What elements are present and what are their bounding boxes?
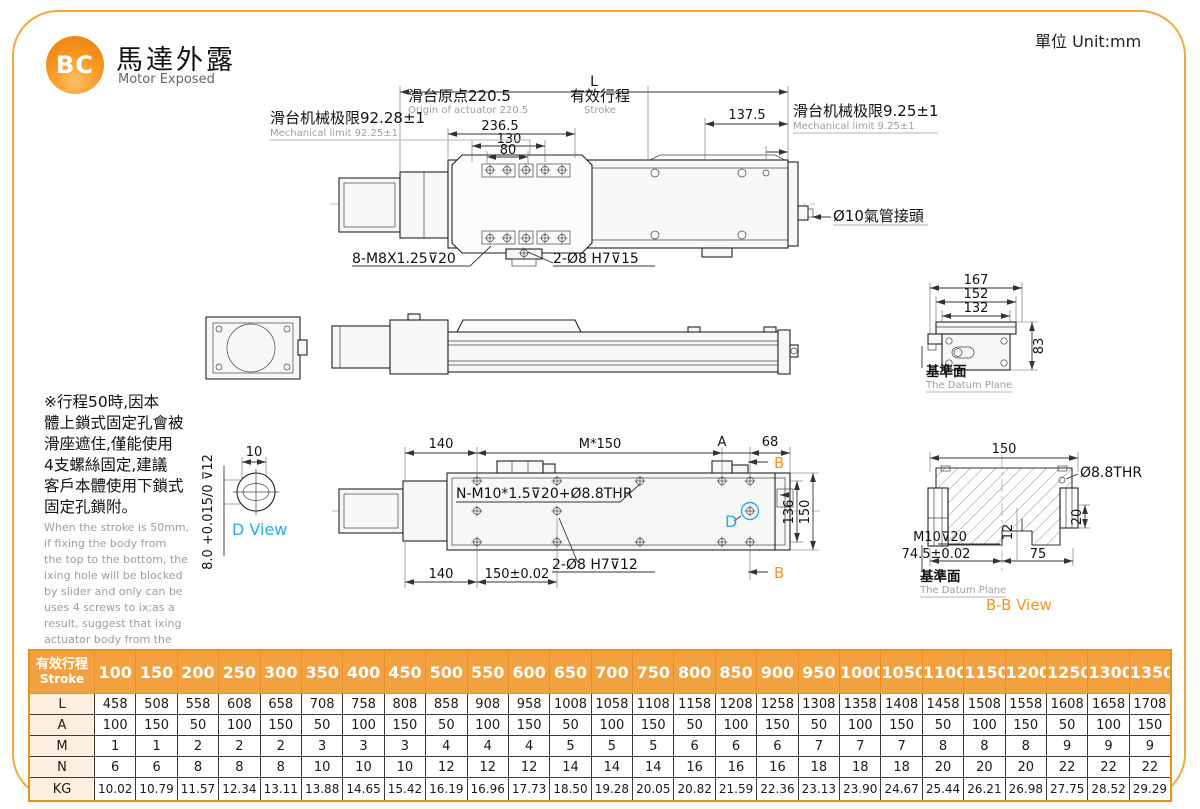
mech-limit-left-zh: 滑台机械极限92.28±1 xyxy=(270,109,425,127)
table-cell: 100 xyxy=(1088,715,1129,736)
table-cell: 22 xyxy=(1129,757,1171,778)
table-cell: 10 xyxy=(343,757,384,778)
table-cell: 1258 xyxy=(757,694,798,715)
section-b-top: B xyxy=(774,454,784,472)
bb-dim-12: 12 xyxy=(1001,524,1016,541)
table-cell: 100 xyxy=(964,715,1005,736)
row-label-a: A xyxy=(29,715,95,736)
table-row-a: A100150501001505010015050100150501001505… xyxy=(29,715,1171,736)
unit-label: 單位 Unit:mm xyxy=(1035,28,1141,52)
screw-callout: 8-M8X1.25⊽20 xyxy=(352,251,456,267)
table-cell: 16 xyxy=(674,757,715,778)
stroke-header-cell: 650 xyxy=(550,650,591,694)
stroke-header-cell: 200 xyxy=(177,650,218,694)
table-cell: 508 xyxy=(136,694,177,715)
table-cell: 100 xyxy=(219,715,260,736)
note-block: ※行程50時,因本 體上鎖式固定孔會被 滑座遮住,僅能使用 4支螺絲固定,建議 … xyxy=(44,392,220,664)
table-cell: 558 xyxy=(177,694,218,715)
table-cell: 1158 xyxy=(674,694,715,715)
stroke-header-cell: 600 xyxy=(508,650,549,694)
stroke-header-cell: 800 xyxy=(674,650,715,694)
bottom-plan-view: D 140 M*150 A 68 B B N-M10*1.5⊽20+Ø8.8TH… xyxy=(332,435,820,588)
dim-140-bottom: 140 xyxy=(429,567,454,582)
stroke-header-cell: 550 xyxy=(467,650,508,694)
d-view-label: D View xyxy=(232,520,287,539)
table-cell: 150 xyxy=(384,715,425,736)
table-cell: 1458 xyxy=(922,694,963,715)
dim-68: 68 xyxy=(762,435,779,450)
table-cell: 9 xyxy=(1129,736,1171,757)
table-cell: 14 xyxy=(633,757,674,778)
table-cell: 1308 xyxy=(798,694,839,715)
stroke-header-cell: 300 xyxy=(260,650,301,694)
table-cell: 14 xyxy=(591,757,632,778)
stroke-header-cell: 400 xyxy=(343,650,384,694)
stroke-header-cell: 1150 xyxy=(964,650,1005,694)
end-view: 167 152 132 83 基準面 The Datum Plane xyxy=(922,273,1047,392)
table-cell: 4 xyxy=(467,736,508,757)
table-cell: 10 xyxy=(384,757,425,778)
table-cell: 20 xyxy=(964,757,1005,778)
table-cell: 17.73 xyxy=(508,778,549,802)
table-cell: 1108 xyxy=(633,694,674,715)
table-cell: 4 xyxy=(508,736,549,757)
stroke-header-label: 有效行程Stroke xyxy=(29,650,95,694)
table-cell: 5 xyxy=(550,736,591,757)
bb-m10-callout: M10⊽20 xyxy=(913,530,967,545)
table-cell: 14 xyxy=(550,757,591,778)
table-cell: 1008 xyxy=(550,694,591,715)
table-cell: 9 xyxy=(1088,736,1129,757)
table-cell: 6 xyxy=(757,736,798,757)
table-cell: 5 xyxy=(633,736,674,757)
air-fitting-label: Ø10氣管接頭 xyxy=(833,207,924,225)
pin-callout-top: 2-Ø8 H7⊽15 xyxy=(553,251,639,267)
table-cell: 18 xyxy=(798,757,839,778)
stroke-header-cell: 150 xyxy=(136,650,177,694)
table-cell: 150 xyxy=(881,715,922,736)
table-cell: 5 xyxy=(591,736,632,757)
label-a: A xyxy=(718,435,727,450)
note-text-en: When the stroke is 50mm, if fixing the b… xyxy=(44,520,220,664)
stroke-header-cell: 500 xyxy=(426,650,467,694)
table-cell: 100 xyxy=(715,715,756,736)
table-cell: 100 xyxy=(840,715,881,736)
dim-150-tol: 150±0.02 xyxy=(485,567,550,582)
bb-view-label: B-B View xyxy=(986,596,1052,614)
mech-limit-right-zh: 滑台机械极限9.25±1 xyxy=(793,102,939,120)
table-cell: 50 xyxy=(177,715,218,736)
dim-10: 10 xyxy=(246,445,263,460)
table-cell: 14.65 xyxy=(343,778,384,802)
table-row-m: M11222333444555666777888999 xyxy=(29,736,1171,757)
table-cell: 6 xyxy=(674,736,715,757)
stroke-header-cell: 850 xyxy=(715,650,756,694)
table-cell: 16.19 xyxy=(426,778,467,802)
table-cell: 758 xyxy=(343,694,384,715)
stroke-header-cell: 700 xyxy=(591,650,632,694)
table-cell: 100 xyxy=(467,715,508,736)
table-cell: 18.50 xyxy=(550,778,591,802)
table-row-l: L458508558608658708758808858908958100810… xyxy=(29,694,1171,715)
table-cell: 150 xyxy=(1129,715,1171,736)
table-cell: 6 xyxy=(95,757,136,778)
bb-dim-75: 75 xyxy=(1030,547,1047,562)
table-cell: 11.57 xyxy=(177,778,218,802)
table-cell: 16 xyxy=(757,757,798,778)
section-b-bottom: B xyxy=(774,564,784,582)
table-cell: 22 xyxy=(1088,757,1129,778)
table-cell: 50 xyxy=(798,715,839,736)
side-pictorial-views xyxy=(206,314,798,379)
table-cell: 12 xyxy=(508,757,549,778)
table-cell: 8 xyxy=(1005,736,1046,757)
stroke-header-cell: 100 xyxy=(95,650,136,694)
stroke-header-cell: 250 xyxy=(219,650,260,694)
bb-dim-74-5: 74.5±0.02 xyxy=(902,547,971,562)
stroke-header-cell: 1050 xyxy=(881,650,922,694)
stroke-label-zh: 有效行程 xyxy=(570,87,630,105)
table-cell: 3 xyxy=(343,736,384,757)
table-cell: 8 xyxy=(177,757,218,778)
table-cell: 150 xyxy=(136,715,177,736)
stroke-header-cell: 750 xyxy=(633,650,674,694)
table-cell: 100 xyxy=(343,715,384,736)
table-cell: 16.96 xyxy=(467,778,508,802)
table-cell: 4 xyxy=(426,736,467,757)
spec-table: 有效行程Stroke100150200250300350400450500550… xyxy=(28,649,1172,802)
table-cell: 12.34 xyxy=(219,778,260,802)
table-cell: 858 xyxy=(426,694,467,715)
table-cell: 608 xyxy=(219,694,260,715)
row-label-m: M xyxy=(29,736,95,757)
table-cell: 2 xyxy=(260,736,301,757)
table-cell: 708 xyxy=(301,694,342,715)
stroke-header-cell: 1300 xyxy=(1088,650,1129,694)
bb-section-view: 150 Ø8.8THR 20 12 M10⊽20 74.5±0.02 75 基準… xyxy=(902,442,1143,614)
table-cell: 1358 xyxy=(840,694,881,715)
pin-callout-bottom: 2-Ø8 H7⊽12 xyxy=(552,557,638,573)
bb-thr-callout: Ø8.8THR xyxy=(1080,465,1142,481)
row-label-n: N xyxy=(29,757,95,778)
table-cell: 1608 xyxy=(1046,694,1087,715)
table-cell: 6 xyxy=(715,736,756,757)
table-cell: 1558 xyxy=(1005,694,1046,715)
table-cell: 50 xyxy=(426,715,467,736)
dim-136: 136 xyxy=(782,500,797,525)
table-cell: 20.82 xyxy=(674,778,715,802)
table-cell: 15.42 xyxy=(384,778,425,802)
table-cell: 10 xyxy=(301,757,342,778)
table-cell: 20 xyxy=(922,757,963,778)
table-cell: 1708 xyxy=(1129,694,1171,715)
table-cell: 26.98 xyxy=(1005,778,1046,802)
table-cell: 50 xyxy=(922,715,963,736)
stroke-header-cell: 450 xyxy=(384,650,425,694)
table-cell: 100 xyxy=(95,715,136,736)
table-row-kg: KG10.0210.7911.5712.3413.1113.8814.6515.… xyxy=(29,778,1171,802)
table-cell: 12 xyxy=(426,757,467,778)
table-cell: 13.11 xyxy=(260,778,301,802)
table-cell: 150 xyxy=(508,715,549,736)
table-cell: 808 xyxy=(384,694,425,715)
datum-label-en-top: The Datum Plane xyxy=(925,380,1012,391)
row-label-kg: KG xyxy=(29,778,95,802)
dim-137-5: 137.5 xyxy=(728,108,765,123)
table-cell: 23.90 xyxy=(840,778,881,802)
table-cell: 10.79 xyxy=(136,778,177,802)
table-cell: 1208 xyxy=(715,694,756,715)
table-cell: 150 xyxy=(260,715,301,736)
table-cell: 26.21 xyxy=(964,778,1005,802)
table-cell: 3 xyxy=(301,736,342,757)
dim-m150: M*150 xyxy=(579,437,622,452)
dim-132: 132 xyxy=(964,301,989,316)
table-cell: 10.02 xyxy=(95,778,136,802)
table-cell: 18 xyxy=(881,757,922,778)
stroke-header-cell: 900 xyxy=(757,650,798,694)
table-cell: 1058 xyxy=(591,694,632,715)
stroke-header-cell: 1350 xyxy=(1129,650,1171,694)
table-cell: 908 xyxy=(467,694,508,715)
table-cell: 50 xyxy=(674,715,715,736)
table-cell: 7 xyxy=(840,736,881,757)
dim-150-right: 150 xyxy=(798,500,813,525)
table-cell: 150 xyxy=(757,715,798,736)
note-text-zh: ※行程50時,因本 體上鎖式固定孔會被 滑座遮住,僅能使用 4支螺絲固定,建議 … xyxy=(44,392,220,518)
table-cell: 6 xyxy=(136,757,177,778)
stroke-header-cell: 950 xyxy=(798,650,839,694)
table-cell: 9 xyxy=(1046,736,1087,757)
table-cell: 20 xyxy=(1005,757,1046,778)
datum-label-en-bb: The Datum Plane xyxy=(919,585,1006,596)
dim-140-top: 140 xyxy=(429,437,454,452)
table-cell: 28.52 xyxy=(1088,778,1129,802)
top-plan-view: L 滑台原点220.5 Origin of actuator 220.5 有效行… xyxy=(270,74,939,267)
origin-label-en: Origin of actuator 220.5 xyxy=(408,105,528,116)
bc-logo-text: BC xyxy=(56,51,94,79)
table-cell: 25.44 xyxy=(922,778,963,802)
table-cell: 1 xyxy=(136,736,177,757)
table-cell: 18 xyxy=(840,757,881,778)
datum-label-zh-top: 基準面 xyxy=(926,363,967,380)
table-cell: 3 xyxy=(384,736,425,757)
page: { "header": { "logo": "BC", "title": "馬達… xyxy=(0,0,1200,809)
table-cell: 2 xyxy=(177,736,218,757)
table-cell: 1408 xyxy=(881,694,922,715)
table-row-n: N668881010101212121414141616161818182020… xyxy=(29,757,1171,778)
table-cell: 8 xyxy=(922,736,963,757)
stroke-header-cell: 1250 xyxy=(1046,650,1087,694)
table-cell: 150 xyxy=(1005,715,1046,736)
table-cell: 1 xyxy=(95,736,136,757)
table-cell: 2 xyxy=(219,736,260,757)
table-cell: 8 xyxy=(260,757,301,778)
thread-callout: N-M10*1.5⊽20+Ø8.8THR xyxy=(456,486,633,502)
dim-80: 80 xyxy=(500,143,517,158)
stroke-label-en: Stroke xyxy=(584,105,616,116)
table-cell: 50 xyxy=(301,715,342,736)
table-cell: 16 xyxy=(715,757,756,778)
table-cell: 7 xyxy=(881,736,922,757)
table-cell: 19.28 xyxy=(591,778,632,802)
row-label-l: L xyxy=(29,694,95,715)
stroke-header-cell: 350 xyxy=(301,650,342,694)
table-cell: 8 xyxy=(964,736,1005,757)
table-cell: 658 xyxy=(260,694,301,715)
table-cell: 8 xyxy=(219,757,260,778)
stroke-header-row: 有效行程Stroke100150200250300350400450500550… xyxy=(29,650,1171,694)
table-cell: 7 xyxy=(798,736,839,757)
bc-logo: BC xyxy=(46,36,104,94)
table-cell: 23.13 xyxy=(798,778,839,802)
dim-152: 152 xyxy=(964,287,989,302)
table-cell: 27.75 xyxy=(1046,778,1087,802)
table-cell: 13.88 xyxy=(301,778,342,802)
mech-limit-left-en: Mechanical limit 92.25±1 xyxy=(270,128,398,139)
table-cell: 12 xyxy=(467,757,508,778)
table-cell: 21.59 xyxy=(715,778,756,802)
table-cell: 50 xyxy=(550,715,591,736)
dim-167: 167 xyxy=(964,273,989,288)
bb-dim-150: 150 xyxy=(992,442,1017,457)
stroke-header-cell: 1100 xyxy=(922,650,963,694)
dim-83: 83 xyxy=(1032,338,1047,355)
page-subtitle: Motor Exposed xyxy=(118,72,215,87)
stroke-header-cell: 1000 xyxy=(840,650,881,694)
table-cell: 24.67 xyxy=(881,778,922,802)
table-cell: 20.05 xyxy=(633,778,674,802)
table-cell: 150 xyxy=(633,715,674,736)
table-cell: 50 xyxy=(1046,715,1087,736)
stroke-header-cell: 1200 xyxy=(1005,650,1046,694)
table-cell: 22 xyxy=(1046,757,1087,778)
table-cell: 1508 xyxy=(964,694,1005,715)
table-cell: 100 xyxy=(591,715,632,736)
d-callout-label: D xyxy=(725,512,737,531)
table-cell: 29.29 xyxy=(1129,778,1171,802)
table-cell: 22.36 xyxy=(757,778,798,802)
datum-label-zh-bb: 基準面 xyxy=(920,568,961,585)
table-cell: 1658 xyxy=(1088,694,1129,715)
origin-label-zh: 滑台原点220.5 xyxy=(408,87,511,105)
table-cell: 958 xyxy=(508,694,549,715)
mech-limit-right-en: Mechanical limit 9.25±1 xyxy=(793,121,915,132)
table-cell: 458 xyxy=(95,694,136,715)
bb-dim-20: 20 xyxy=(1070,509,1085,526)
stroke-spec-table: 有效行程Stroke100150200250300350400450500550… xyxy=(28,649,1172,802)
